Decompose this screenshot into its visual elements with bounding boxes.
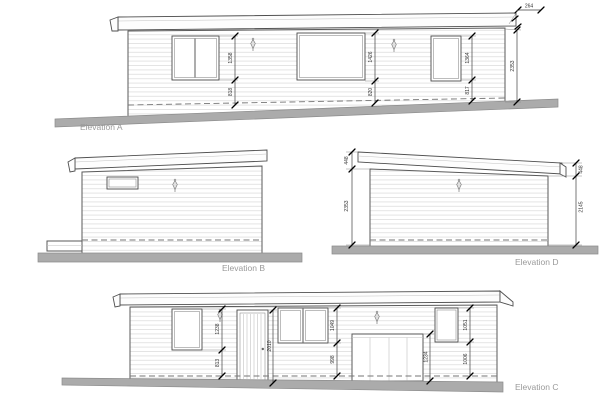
dim-label: 264	[525, 4, 534, 10]
elevation-b-label: Elevation B	[222, 263, 265, 273]
window-a2	[297, 33, 365, 80]
elevation-d: 448 2353 448 2145 Elevation D	[332, 149, 598, 267]
dim-label: 1051	[463, 319, 469, 330]
dim-label: 2145	[578, 201, 584, 212]
dim-label: 1238	[215, 323, 221, 334]
water-tank	[352, 334, 423, 381]
elevation-c-label: Elevation C	[515, 382, 558, 392]
dim-label: 2353	[344, 200, 350, 211]
dim-label: 998	[330, 355, 336, 364]
dim-label: 2010	[267, 340, 273, 351]
roof-c	[113, 291, 513, 307]
window-c3	[435, 308, 458, 342]
window-a1	[172, 36, 219, 80]
dim-label: 1358	[228, 52, 234, 63]
roof-right-overhang-c	[500, 291, 513, 306]
dim-label: 818	[228, 88, 234, 97]
roof-left-end-c	[113, 294, 120, 307]
dim-label: 448	[344, 156, 350, 165]
elevation-drawing-sheet: 1358 818 1426 820 1364 817	[0, 0, 600, 400]
entry-door	[237, 310, 268, 383]
dim-a-wall-height: 2353	[505, 27, 521, 105]
dim-label: 1049	[330, 320, 336, 331]
elevation-a-label: Elevation A	[80, 122, 123, 132]
dim-label: 448	[578, 165, 584, 174]
dim-label: 2353	[510, 60, 516, 71]
dim-label: 1364	[465, 52, 471, 63]
door-knob	[262, 348, 264, 350]
roof-right-end-d	[560, 163, 566, 177]
elevation-b: Elevation B	[38, 150, 302, 273]
window-a3	[431, 36, 461, 81]
window-c2	[278, 308, 328, 343]
elevation-a: 1358 818 1426 820 1364 817	[55, 4, 558, 133]
ground-d	[332, 246, 598, 254]
dim-label: 1234	[423, 351, 429, 362]
porch-step-b	[47, 241, 82, 251]
elevation-d-label: Elevation D	[515, 257, 558, 267]
roof-left-end-a	[110, 17, 118, 31]
dim-label: 817	[465, 86, 471, 95]
ground-b	[38, 253, 302, 262]
dim-label: 813	[215, 359, 221, 368]
elevation-c: 1238 813 2010 1049 998 1234	[62, 291, 558, 392]
drawing-canvas: 1358 818 1426 820 1364 817	[0, 0, 600, 400]
dim-label: 820	[368, 88, 374, 97]
dim-label: 1006	[463, 353, 469, 364]
dim-label: 1426	[368, 51, 374, 62]
roof-left-end-b	[68, 158, 75, 172]
window-c1	[172, 309, 202, 350]
window-b1	[107, 177, 138, 189]
dim-d-left: 448 2353	[344, 149, 370, 248]
